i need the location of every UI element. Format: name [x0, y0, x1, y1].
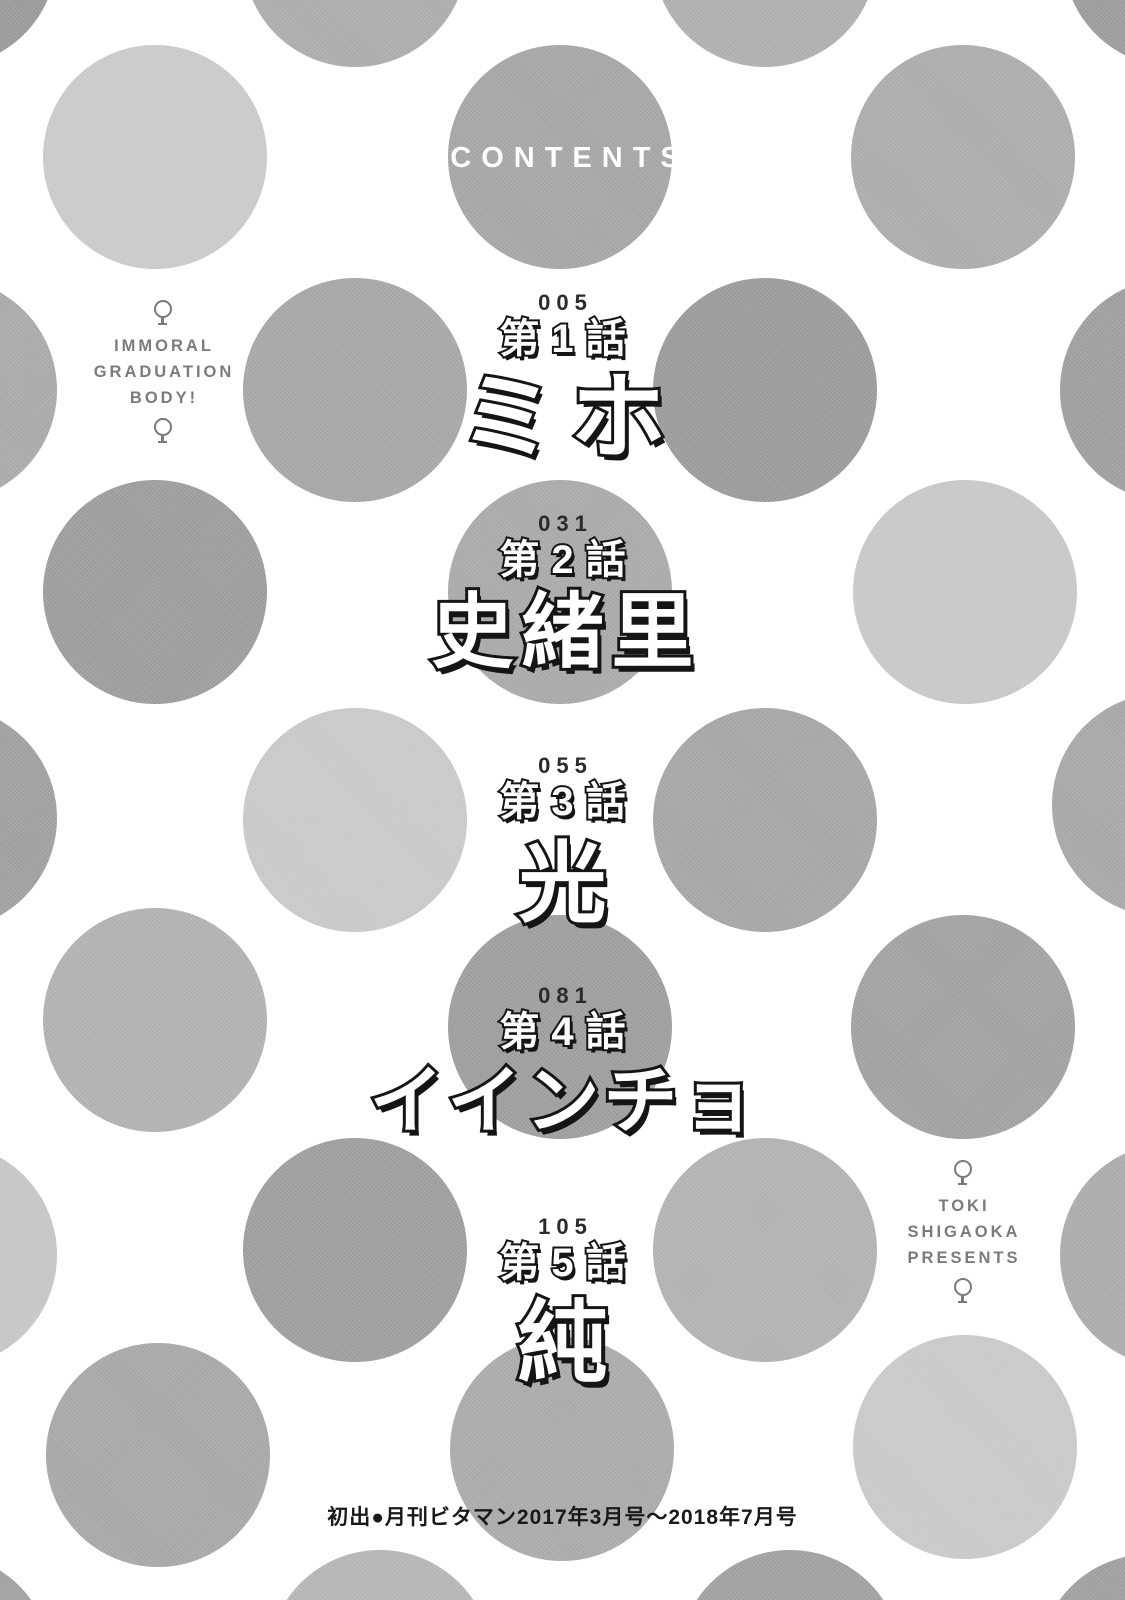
polka-dot: [268, 1550, 492, 1600]
polka-dot: [678, 1550, 902, 1600]
chapter-entry-3: 055 第3話 光: [0, 753, 1125, 935]
chapter-title: 光: [0, 833, 1125, 935]
polka-dot: [1063, 0, 1125, 67]
polka-dot: [243, 0, 467, 67]
first-publication-note: 初出●月刊ビタマン2017年3月号～2018年7月号: [0, 1503, 1125, 1533]
chapter-page-number: 005: [0, 290, 1125, 316]
chapter-page-number: 055: [0, 753, 1125, 779]
female-symbol-icon: [954, 1160, 972, 1186]
chapter-title: ミホ: [0, 364, 1125, 472]
polka-dot: [653, 0, 877, 67]
page-title: CONTENTS: [0, 143, 1125, 173]
chapter-page-number: 031: [0, 511, 1125, 537]
chapter-entry-5: 105 第5話 純: [0, 1214, 1125, 1396]
polka-dot: [0, 0, 57, 67]
chapter-title: 史緒里: [0, 585, 1125, 681]
chapter-label: 第3話: [0, 779, 1125, 825]
chapter-label: 第5話: [0, 1240, 1125, 1286]
polka-dot: [0, 1553, 52, 1600]
chapter-label: 第4話: [0, 1009, 1125, 1055]
chapter-page-number: 081: [0, 983, 1125, 1009]
chapter-title: イインチョ: [0, 1057, 1125, 1145]
chapter-entry-4: 081 第4話 イインチョ: [0, 983, 1125, 1145]
chapter-label: 第2話: [0, 537, 1125, 583]
chapter-title: 純: [0, 1292, 1125, 1396]
chapter-label: 第1話: [0, 316, 1125, 362]
chapter-entry-1: 005 第1話 ミホ: [0, 290, 1125, 472]
chapter-page-number: 105: [0, 1214, 1125, 1240]
chapter-entry-2: 031 第2話 史緒里: [0, 511, 1125, 681]
manga-contents-page: CONTENTS IMMORAL GRADUATION BODY! TOKI S…: [0, 0, 1125, 1600]
polka-dot: [1038, 1554, 1125, 1600]
